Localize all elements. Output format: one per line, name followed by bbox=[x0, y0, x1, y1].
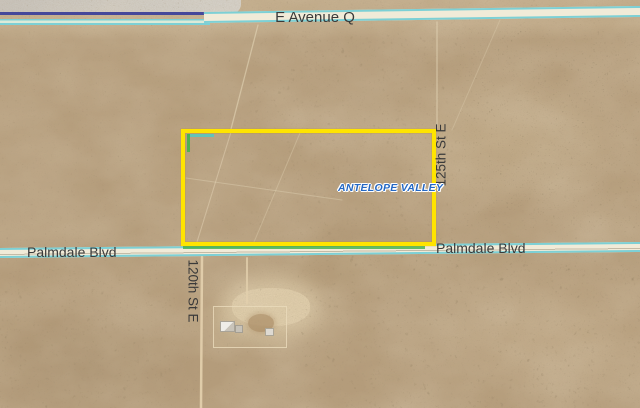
parcel-accent-green bbox=[187, 134, 190, 152]
avenue-q-west-segment bbox=[0, 19, 210, 25]
watermark-antelope-valley: ANTELOPE VALLEY bbox=[338, 182, 430, 194]
building-shed bbox=[265, 328, 274, 336]
parcel-accent-teal bbox=[187, 134, 214, 137]
parcel-south-boundary-line bbox=[183, 246, 425, 249]
road-label-palmdale-blvd-east: Palmdale Blvd bbox=[436, 240, 526, 256]
aerial-map[interactable]: E Avenue Q Palmdale Blvd Palmdale Blvd 1… bbox=[0, 0, 640, 408]
building-main bbox=[220, 321, 235, 332]
building-annex bbox=[235, 325, 243, 333]
road-label-palmdale-blvd-west: Palmdale Blvd bbox=[27, 244, 117, 260]
road-label-e-avenue-q: E Avenue Q bbox=[250, 9, 380, 26]
